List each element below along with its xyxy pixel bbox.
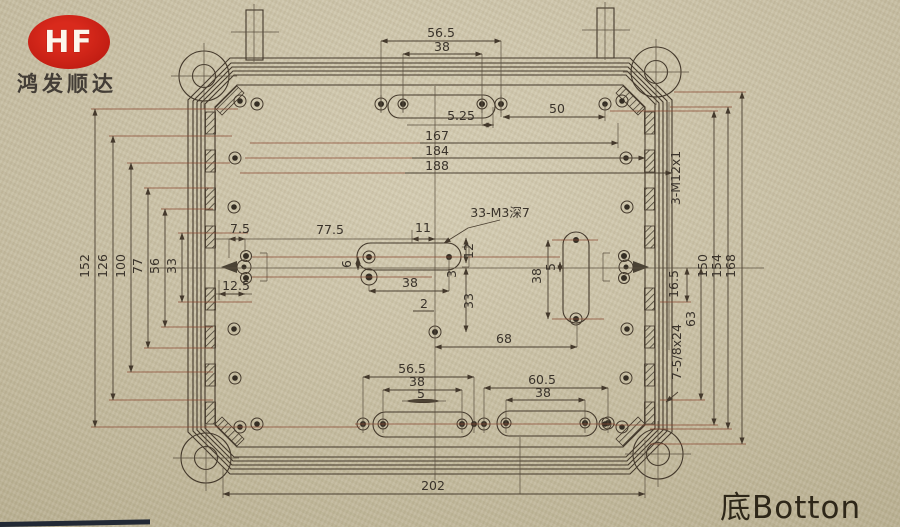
dim-mid-12: 12 [461,243,476,259]
drawing-sheet: HF 鸿发顺达 底Botton [0,0,900,527]
dim-right-168: 168 [723,254,738,278]
note-conduit: 7-5/8x24 [669,324,684,380]
dim-left-7-5: 7.5 [230,221,250,236]
note-m3-holes: 33-M3深7 [470,205,530,220]
dim-mid-3: 3 [444,270,459,278]
dim-left-100: 100 [113,254,128,278]
dim-right-16-5: 16.5 [666,270,681,298]
dim-top-offset: 5.25 [447,108,475,123]
dim-left-12-5: 12.5 [222,278,250,293]
dim-right-154: 154 [709,254,724,278]
dim-left-126: 126 [95,254,110,278]
dim-right-63: 63 [683,311,698,327]
dim-bot-202: 202 [421,478,445,493]
dim-mid-68: 68 [496,331,512,346]
dim-bot-38-right: 38 [535,385,551,400]
dim-mid-2: 2 [420,296,428,311]
dim-mid-77-5: 77.5 [316,222,344,237]
dim-width-184: 184 [425,143,449,158]
dim-width-167: 167 [425,128,449,143]
dim-plate-38: 38 [529,268,544,284]
note-m12-holes: 3-M12x1 [668,151,683,206]
dim-left-56: 56 [147,258,162,274]
dim-top-inner: 38 [434,39,450,54]
corner-ears [171,39,691,491]
dim-top-outer: 56.5 [427,25,455,40]
dim-mid-33: 33 [461,293,476,309]
dim-mid-38: 38 [402,275,418,290]
dim-bot-5: 5 [417,386,425,401]
dim-mid-6: 6 [339,260,354,268]
dim-mid-11: 11 [415,220,431,235]
dim-width-188: 188 [425,158,449,173]
dim-plate-5: 5 [543,263,558,271]
dim-top-fifty: 50 [549,101,565,116]
dim-right-150: 150 [695,254,710,278]
dim-left-33: 33 [164,258,179,274]
technical-drawing: 56.5 38 5.25 50 167 184 188 152 126 100 … [0,0,900,527]
dim-left-77: 77 [130,258,145,274]
dim-left-152: 152 [77,254,92,278]
